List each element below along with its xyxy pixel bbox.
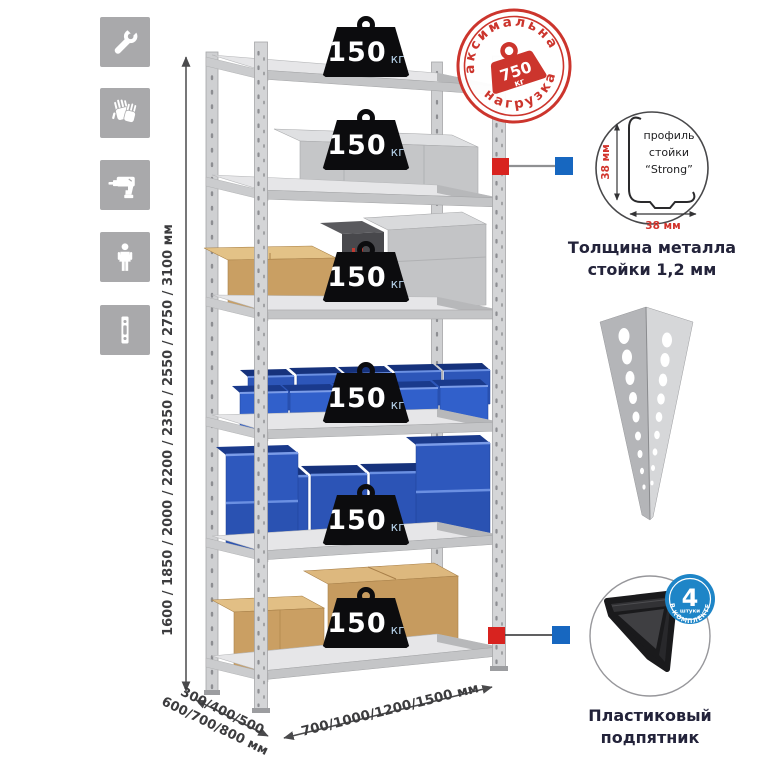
shelf-load-badge-4: 150кг xyxy=(322,362,410,423)
gloves-icon xyxy=(107,95,143,131)
load-unit: кг xyxy=(391,146,405,159)
foot-caption-line2: подпятник xyxy=(548,727,752,749)
badge-sub: штуки xyxy=(680,609,700,615)
load-value: 150 xyxy=(327,39,386,66)
feature-gloves xyxy=(100,88,150,138)
load-value: 150 xyxy=(327,132,386,159)
front-right-post xyxy=(490,56,508,671)
blue-marker-square xyxy=(552,626,570,644)
profile-dim-horizontal: 38 мм xyxy=(645,220,680,232)
load-value: 150 xyxy=(327,264,386,291)
feature-post-profile xyxy=(100,305,150,355)
profile-callout-connector xyxy=(492,157,573,175)
profile-caption: Толщина металла стойки 1,2 мм xyxy=(550,237,754,281)
shelf-load-badge-2: 150кг xyxy=(322,109,410,170)
post-profile-icon xyxy=(108,313,142,347)
load-unit: кг xyxy=(391,399,405,412)
shelf-load-badge-6: 150кг xyxy=(322,587,410,648)
load-value: 150 xyxy=(327,507,386,534)
shelf-load-badge-3: 150кг xyxy=(322,241,410,302)
profile-label-3: “Strong” xyxy=(645,163,693,176)
load-unit: кг xyxy=(391,53,405,66)
feature-person xyxy=(100,232,150,282)
profile-caption-line1: Толщина металла xyxy=(550,237,754,259)
wrench-icon xyxy=(108,25,142,59)
drill-icon xyxy=(107,167,143,203)
height-dimension-label: 1600 / 1850 / 2000 / 2200 / 2350 / 2550 … xyxy=(161,190,183,670)
foot-caption-line1: Пластиковый xyxy=(548,705,752,727)
profile-caption-line2: стойки 1,2 мм xyxy=(550,259,754,281)
person-icon xyxy=(108,240,142,274)
red-marker-square xyxy=(492,158,509,175)
infographic-canvas: максимальная нагрузка 750 кг 38 мм 38 мм… xyxy=(0,0,765,765)
profile-label-2: стойки xyxy=(649,146,689,159)
foot-caption: Пластиковый подпятник xyxy=(548,705,752,749)
shelf-load-badge-5: 150кг xyxy=(322,484,410,545)
front-left-post xyxy=(252,42,270,713)
foot-callout-connector xyxy=(488,626,570,644)
feature-drill xyxy=(100,160,150,210)
back-left-post xyxy=(204,52,220,695)
load-unit: кг xyxy=(391,278,405,291)
red-marker-square xyxy=(488,627,505,644)
profile-dim-vertical: 38 мм xyxy=(600,144,612,179)
load-unit: кг xyxy=(391,624,405,637)
corner-post-photo xyxy=(600,307,693,520)
profile-label-1: профиль xyxy=(644,129,695,142)
blue-marker-square xyxy=(555,157,573,175)
profile-detail-circle: 38 мм 38 мм профиль стойки “Strong” xyxy=(596,112,708,232)
load-value: 150 xyxy=(327,610,386,637)
load-unit: кг xyxy=(391,521,405,534)
feature-wrench xyxy=(100,17,150,67)
load-value: 150 xyxy=(327,385,386,412)
plastic-foot-circle: 4 штуки В КОМПЛЕКТЕ xyxy=(590,574,715,696)
shelf-load-badge-1: 150кг xyxy=(322,16,410,77)
